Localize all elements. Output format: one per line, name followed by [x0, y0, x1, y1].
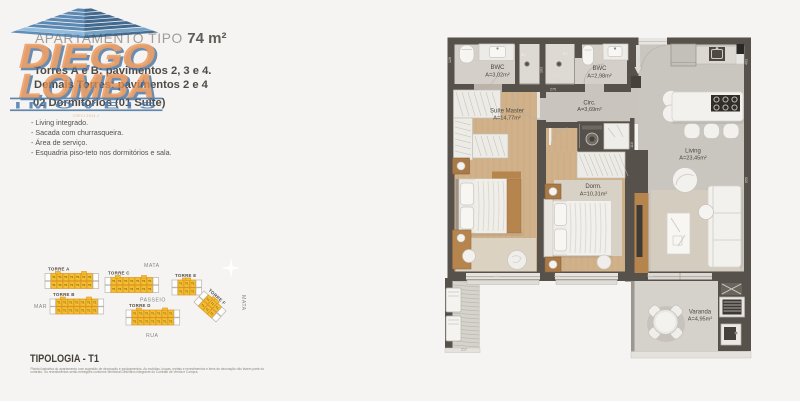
- svg-text:T1: T1: [157, 320, 161, 324]
- svg-text:T1: T1: [179, 290, 183, 294]
- svg-text:Living: Living: [685, 149, 701, 155]
- svg-text:A=10,31m²: A=10,31m²: [580, 191, 608, 197]
- svg-text:TORRE B: TORRE B: [53, 292, 75, 297]
- svg-text:T1: T1: [82, 275, 86, 279]
- svg-text:255: 255: [554, 274, 560, 278]
- svg-text:A=3,69m²: A=3,69m²: [577, 107, 602, 113]
- svg-text:T1: T1: [148, 287, 152, 291]
- svg-text:T1: T1: [69, 309, 73, 313]
- svg-text:T1: T1: [81, 301, 85, 305]
- svg-text:T1: T1: [142, 279, 146, 283]
- svg-text:T1: T1: [139, 312, 143, 316]
- svg-text:MAR: MAR: [34, 304, 47, 310]
- svg-text:TORRE C: TORRE C: [108, 271, 130, 276]
- svg-text:T1: T1: [75, 309, 79, 313]
- svg-text:110: 110: [630, 142, 634, 148]
- svg-text:T1: T1: [133, 312, 137, 316]
- svg-text:A=2,98m²: A=2,98m²: [587, 73, 612, 79]
- svg-text:A=4,95m²: A=4,95m²: [688, 317, 713, 323]
- svg-text:A=14,77m²: A=14,77m²: [493, 116, 521, 122]
- svg-text:T1: T1: [157, 312, 161, 316]
- svg-text:T1: T1: [124, 279, 128, 283]
- svg-text:T1: T1: [136, 287, 140, 291]
- svg-text:280: 280: [495, 274, 501, 278]
- svg-text:403: 403: [745, 59, 749, 65]
- svg-text:T1: T1: [130, 287, 134, 291]
- svg-text:T1: T1: [64, 275, 68, 279]
- svg-text:140: 140: [638, 57, 642, 63]
- svg-text:T1: T1: [57, 301, 61, 305]
- svg-text:BWC: BWC: [491, 65, 506, 71]
- svg-text:T1: T1: [148, 279, 152, 283]
- svg-text:T1: T1: [139, 320, 143, 324]
- svg-text:275: 275: [550, 88, 556, 92]
- svg-text:T1: T1: [76, 275, 80, 279]
- svg-text:T1: T1: [169, 320, 173, 324]
- svg-text:126: 126: [448, 57, 452, 63]
- svg-text:T1: T1: [88, 283, 92, 287]
- svg-text:T1: T1: [145, 312, 149, 316]
- svg-text:T1: T1: [151, 320, 155, 324]
- svg-text:T1: T1: [64, 283, 68, 287]
- svg-text:T1: T1: [52, 275, 56, 279]
- svg-text:T1: T1: [93, 309, 97, 313]
- svg-text:TORRE D: TORRE D: [129, 303, 151, 308]
- svg-text:T1: T1: [93, 301, 97, 305]
- svg-text:T1: T1: [179, 282, 183, 286]
- svg-text:RUA: RUA: [146, 333, 158, 339]
- svg-text:T1: T1: [57, 309, 61, 313]
- svg-text:Varanda: Varanda: [689, 310, 712, 316]
- svg-text:BO: BO: [521, 53, 526, 57]
- svg-text:310: 310: [647, 274, 653, 278]
- svg-text:I M Ó V E I S: I M Ó V E I S: [15, 99, 156, 110]
- svg-text:T1: T1: [52, 283, 56, 287]
- svg-text:T1: T1: [185, 290, 189, 294]
- svg-text:PASSEIO: PASSEIO: [140, 298, 166, 304]
- svg-text:T1: T1: [142, 287, 146, 291]
- svg-text:T1: T1: [70, 275, 74, 279]
- svg-text:MATA: MATA: [144, 263, 160, 269]
- svg-text:T1: T1: [130, 279, 134, 283]
- svg-text:T1: T1: [87, 309, 91, 313]
- svg-text:CRECI 2914-J: CRECI 2914-J: [73, 114, 100, 118]
- svg-text:TORRE A: TORRE A: [48, 267, 70, 272]
- svg-text:T1: T1: [151, 312, 155, 316]
- svg-text:217: 217: [461, 348, 467, 352]
- svg-text:T1: T1: [87, 301, 91, 305]
- svg-text:T1: T1: [133, 320, 137, 324]
- svg-text:T1: T1: [75, 301, 79, 305]
- svg-text:655: 655: [745, 177, 749, 183]
- svg-text:T1: T1: [63, 309, 67, 313]
- svg-text:BO: BO: [563, 52, 568, 56]
- svg-text:A=3,02m²: A=3,02m²: [485, 73, 510, 79]
- svg-text:T1: T1: [70, 283, 74, 287]
- svg-text:Dorm.: Dorm.: [585, 184, 602, 190]
- svg-text:T1: T1: [191, 290, 195, 294]
- svg-text:T1: T1: [58, 283, 62, 287]
- svg-text:Circ.: Circ.: [583, 101, 596, 107]
- svg-text:T1: T1: [118, 287, 122, 291]
- svg-text:MATA: MATA: [240, 295, 246, 311]
- svg-text:103: 103: [540, 67, 544, 73]
- svg-text:T1: T1: [136, 279, 140, 283]
- svg-text:T1: T1: [124, 287, 128, 291]
- svg-text:T1: T1: [169, 312, 173, 316]
- svg-text:TORRE E: TORRE E: [175, 273, 197, 278]
- svg-text:A=23,45m²: A=23,45m²: [679, 156, 707, 162]
- svg-text:T1: T1: [82, 283, 86, 287]
- svg-text:T1: T1: [58, 275, 62, 279]
- svg-text:T1: T1: [88, 275, 92, 279]
- svg-text:T1: T1: [163, 312, 167, 316]
- svg-text:T1: T1: [163, 320, 167, 324]
- svg-text:T1: T1: [76, 283, 80, 287]
- svg-text:T1: T1: [118, 279, 122, 283]
- svg-text:T1: T1: [145, 320, 149, 324]
- svg-text:T1: T1: [112, 287, 116, 291]
- svg-text:T1: T1: [112, 279, 116, 283]
- svg-text:T1: T1: [191, 282, 195, 286]
- svg-text:Suíte Master: Suíte Master: [490, 109, 524, 115]
- svg-text:T1: T1: [63, 301, 67, 305]
- svg-text:T1: T1: [69, 301, 73, 305]
- svg-text:268: 268: [555, 79, 561, 83]
- svg-text:T1: T1: [185, 282, 189, 286]
- svg-text:T1: T1: [81, 309, 85, 313]
- svg-text:BWC: BWC: [593, 66, 608, 72]
